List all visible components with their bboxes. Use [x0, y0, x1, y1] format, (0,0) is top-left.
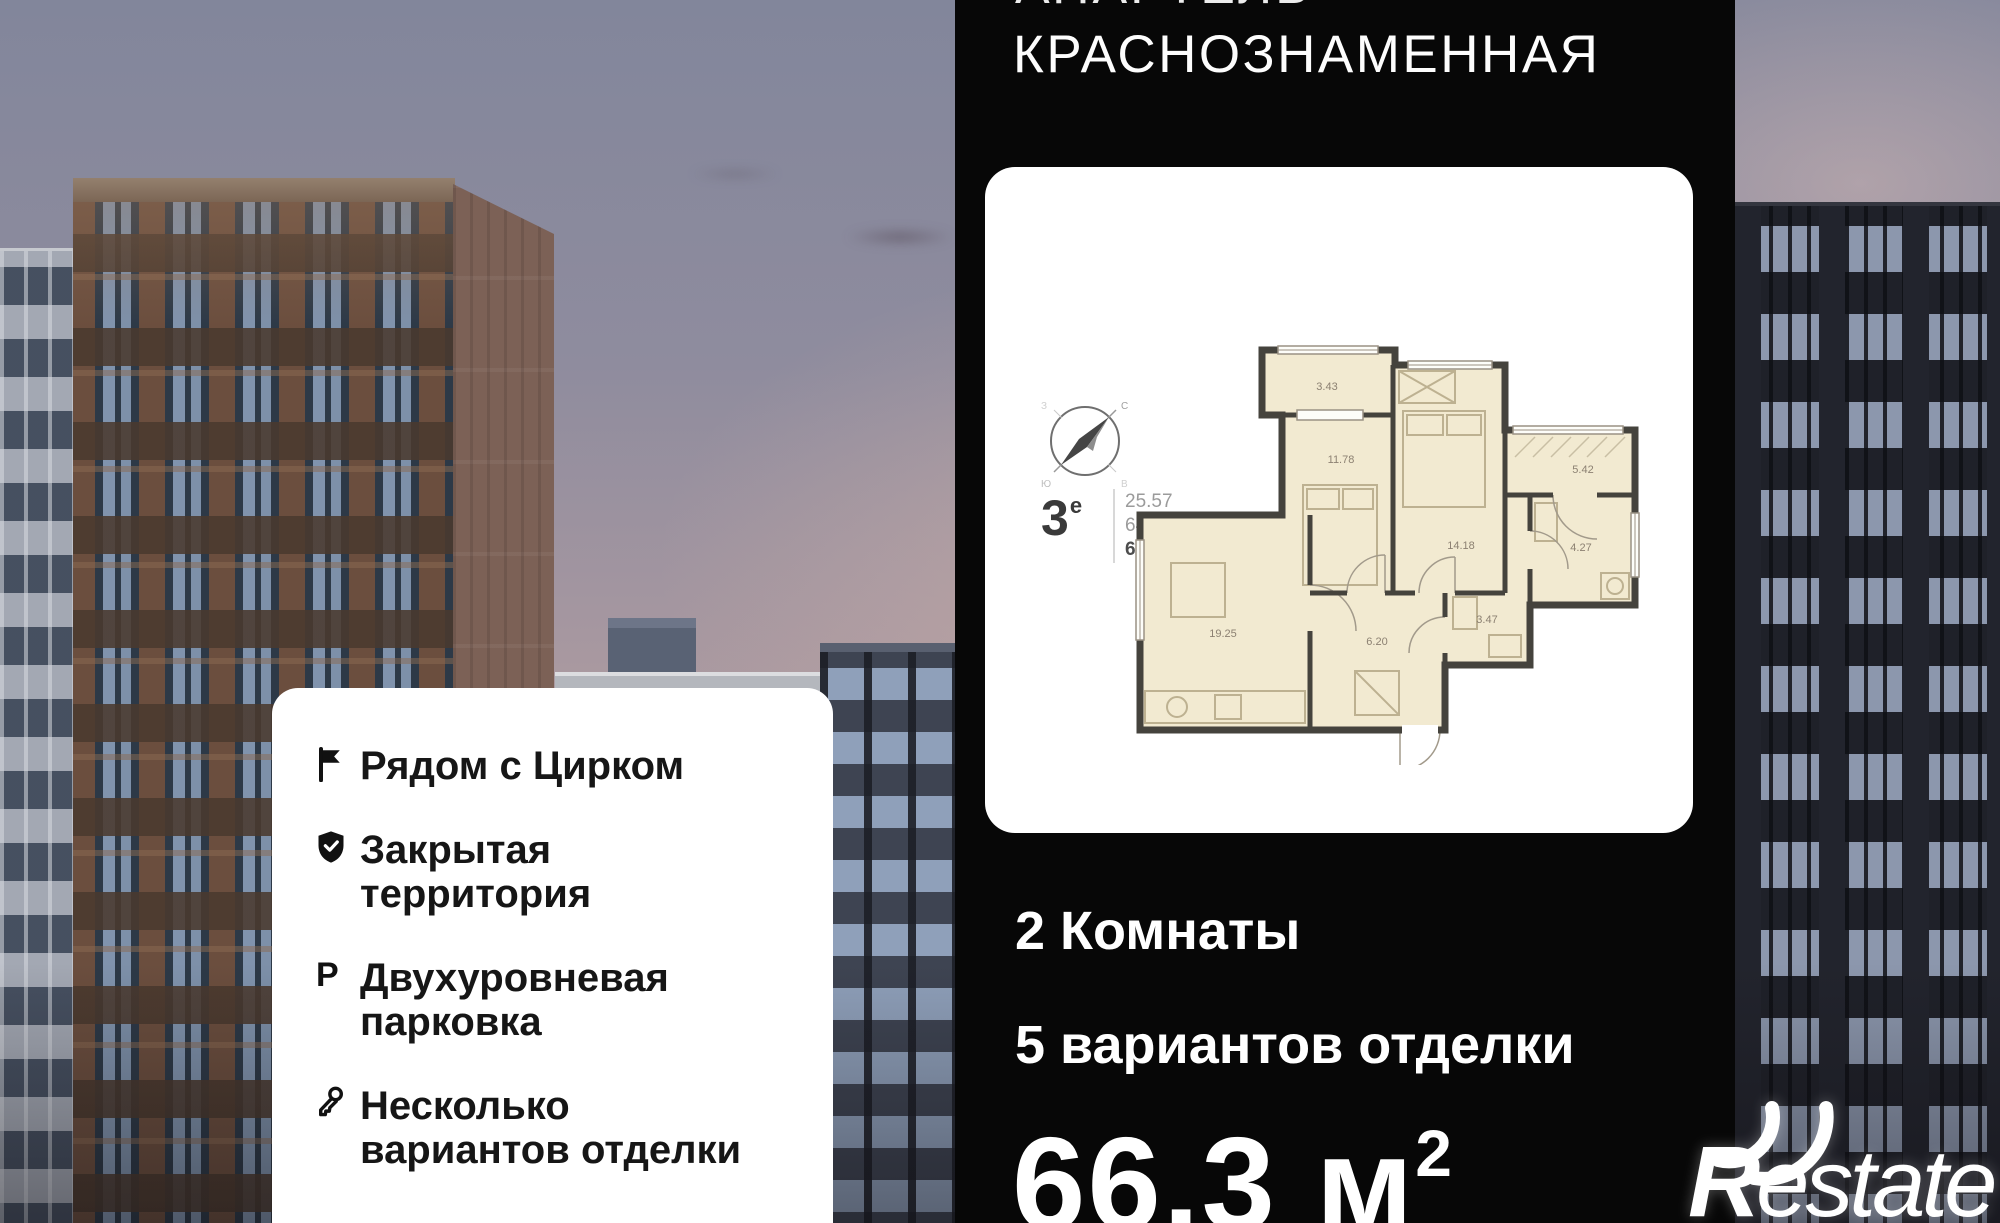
feature-item-circus: Рядом с Цирком: [316, 744, 813, 788]
cloud: [845, 228, 955, 246]
room-label-living: 19.25: [1209, 628, 1237, 640]
feature-text: Рядом с Цирком: [360, 744, 684, 788]
parking-icon: Р: [316, 958, 352, 998]
feature-text: Закрытаятерритория: [360, 828, 591, 916]
floorplan-card: С Ю В З 3е 25.57 64.58 66.30: [985, 167, 1693, 833]
cloud: [690, 168, 780, 180]
room-label-corridor: 5.42: [1572, 464, 1593, 476]
feature-item-finishes: Нескольковариантов отделки: [316, 1084, 813, 1172]
total-area: 66.3 м2: [1012, 1118, 1454, 1223]
features-card: Рядом с Цирком Закрытаятерритория Р Двух…: [272, 688, 833, 1223]
room-label-bath-small: 3.47: [1476, 614, 1497, 626]
room-label-hall: 6.20: [1366, 636, 1387, 648]
room-label-bath: 4.27: [1570, 542, 1591, 554]
flag-icon: [316, 746, 352, 786]
feature-text: Двухуровневаяпарковка: [360, 956, 669, 1044]
logo-rest: estate: [1756, 1130, 1994, 1223]
rooms-count: 2 Комнаты: [1015, 900, 1300, 962]
finish-options: 5 вариантов отделки: [1015, 1014, 1575, 1076]
room-label-bedroom1: 11.78: [1328, 454, 1355, 466]
building-brown-parapet: [73, 178, 455, 202]
feature-text: Нескольковариантов отделки: [360, 1084, 741, 1172]
floorplan-drawing: 3.43 11.78 14.18 5.42 19.25 6.20 3.47 4.…: [1115, 335, 1655, 765]
feature-item-parking: Р Двухуровневаяпарковка: [316, 956, 813, 1044]
room-label-bedroom2: 14.18: [1447, 540, 1475, 552]
compass-s: Ю: [1041, 479, 1051, 489]
compass-w: З: [1041, 401, 1047, 412]
room-label-balcony: 3.43: [1316, 381, 1337, 393]
feature-item-closed-territory: Закрытаятерритория: [316, 828, 813, 916]
project-title: КРАСНОЗНАМЕННАЯ: [1013, 24, 1600, 85]
flat-type-label: 3е: [1041, 489, 1081, 547]
info-panel: АПАРТЕЛЬ КРАСНОЗНАМЕННАЯ С Ю В З 3е: [955, 0, 1735, 1223]
project-top-line-cropped: АПАРТЕЛЬ: [1015, 0, 1312, 16]
ad-banner: АПАРТЕЛЬ КРАСНОЗНАМЕННАЯ С Ю В З 3е: [0, 0, 2000, 1223]
restate-logo: R estate: [1688, 1086, 2000, 1223]
logo-initial: R: [1688, 1126, 1760, 1223]
key-icon: [316, 1086, 352, 1126]
shield-check-icon: [316, 830, 352, 870]
